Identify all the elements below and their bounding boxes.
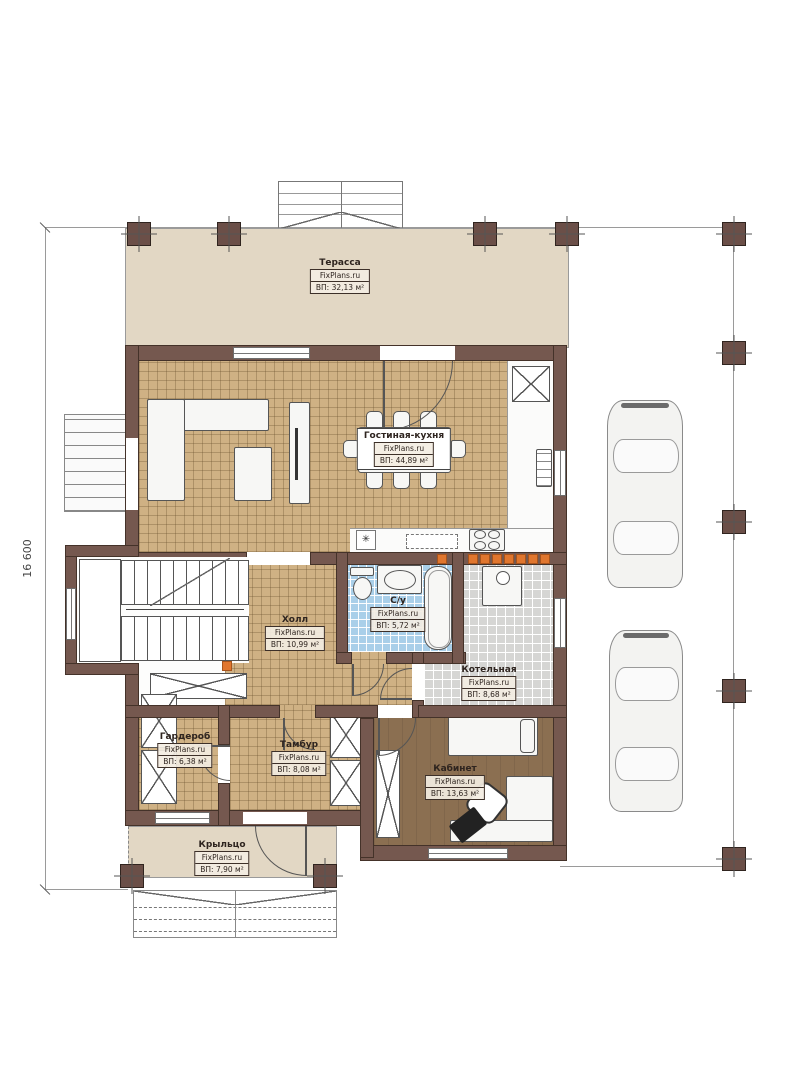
spotlight-marker [222,661,232,671]
grid-line-right [733,228,734,868]
brand-label: FixPlans.ru [375,443,433,455]
room-name: Крыльцо [194,840,249,850]
dimension-label: 16 600 [21,539,34,578]
tv-screen [295,428,298,480]
brand-label: FixPlans.ru [426,776,484,788]
room-label-bathroom: С/у FixPlans.ru ВП: 5,72 м² [370,596,425,632]
tambour-closet [330,760,362,806]
stair-flight-lower [120,616,249,661]
canopy-v-left [279,212,341,229]
column [722,679,746,703]
room-label-living-kitchen: Гостиная-кухня FixPlans.ru ВП: 44,89 м² [357,428,451,470]
wall-segment [336,552,348,664]
room-name: Кабинет [425,764,485,774]
brand-label: FixPlans.ru [272,752,325,764]
terrace-door-leaf [383,361,385,431]
spotlight-marker [480,554,490,564]
steps-chevron-right [235,891,336,905]
coffee-table [234,447,272,501]
burner [488,530,500,539]
front-door-opening [243,812,307,824]
room-name: Гардероб [157,732,212,742]
spotlight-marker [492,554,502,564]
window [233,347,310,359]
spotlight-marker [528,554,538,564]
stair-arrow [126,609,244,610]
car-rear-window [615,747,679,781]
area-label: ВП: 13,63 м² [426,788,484,799]
sink-basin [384,570,416,590]
dining-chair [420,471,437,489]
room-label-office: Кабинет FixPlans.ru ВП: 13,63 м² [425,764,485,800]
area-label: ВП: 10,99 м² [266,639,324,650]
window [554,450,566,496]
wall-segment [65,545,139,557]
stair-break-line [150,558,230,606]
spotlight-marker [504,554,514,564]
room-label-terrace: Терасса FixPlans.ru ВП: 32,13 м² [310,258,370,294]
grid-line-bottom-right [560,866,745,867]
area-label: ВП: 32,13 м² [311,282,369,293]
wall-segment [336,652,352,664]
area-label: ВП: 6,38 м² [158,756,211,767]
fridge [512,366,550,402]
bathtub-inner [428,570,450,648]
area-label: ВП: 8,68 м² [462,689,515,700]
spotlight-marker [540,554,550,564]
wall-segment [125,345,567,361]
wall-segment [218,705,230,745]
brand-label: FixPlans.ru [311,270,369,282]
kitchen-sink-icon: ✳ [356,530,376,550]
column [127,222,151,246]
spotlight-marker [437,554,447,564]
side-entrance-opening [126,438,138,510]
brand-label: FixPlans.ru [266,627,324,639]
oven [536,449,552,487]
room-label-porch: Крыльцо FixPlans.ru ВП: 7,90 м² [194,840,249,876]
dishwasher [406,534,458,549]
column [313,864,337,888]
burner [474,530,486,539]
column [722,341,746,365]
room-name: С/у [370,596,425,606]
floor-plan: 16 600 ✳ [0,0,792,1080]
car-top-view [609,630,683,812]
tambour-closet [330,712,362,758]
room-label-hall: Холл FixPlans.ru ВП: 10,99 м² [265,615,325,651]
wall-segment [418,705,567,718]
office-wardrobe [376,750,400,838]
column [473,222,497,246]
dining-chair [366,471,383,489]
brand-label: FixPlans.ru [158,744,211,756]
bed-pillow [520,719,535,753]
car-rear-window [613,521,679,555]
burner [474,541,486,550]
canopy-v-right [341,212,403,229]
car-windshield [613,439,679,473]
brand-label: FixPlans.ru [371,608,424,620]
room-name: Котельная [461,665,516,675]
wall-segment [315,705,378,718]
toilet-bowl [353,577,372,600]
car-top-view [607,400,683,588]
room-name: Терасса [310,258,370,268]
wall-segment [218,783,230,826]
dining-chair [393,471,410,489]
column [555,222,579,246]
dimension-line [45,228,46,890]
room-label-wardrobe: Гардероб FixPlans.ru ВП: 6,38 м² [157,732,212,768]
sofa-left [147,399,185,501]
car-hood [623,633,669,638]
brand-label: FixPlans.ru [195,852,248,864]
column [722,847,746,871]
wall-segment [125,705,280,718]
area-label: ВП: 7,90 м² [195,864,248,875]
area-label: ВП: 44,89 м² [375,455,433,466]
front-door-leaf [305,826,307,876]
column [217,222,241,246]
area-label: ВП: 5,72 м² [371,620,424,631]
car-windshield [615,667,679,701]
room-name: Холл [265,615,325,625]
toilet-tank [350,567,374,576]
room-name: Тамбур [271,740,326,750]
area-label: ВП: 8,08 м² [272,764,325,775]
wall-segment [412,652,424,664]
stove [469,529,505,551]
office-door-leaf [378,718,380,756]
window [554,598,566,648]
window [66,588,76,640]
room-name: Гостиная-кухня [364,431,444,441]
porch-steps [133,890,337,938]
boiler-dial [496,571,510,585]
car-hood [621,403,668,408]
canopy-hatch [278,181,403,231]
window [428,848,508,859]
steps-chevron-left [134,891,235,905]
spotlight-marker [468,554,478,564]
bathroom-door-leaf [352,664,354,696]
dining-chair [343,440,358,458]
tv-console [289,402,310,504]
column [120,864,144,888]
brand-label: FixPlans.ru [462,677,515,689]
terrace-door-opening [380,346,455,360]
wall-segment [452,552,464,664]
column [722,222,746,246]
boiler-door-leaf [380,698,412,700]
room-label-tambour: Тамбур FixPlans.ru ВП: 8,08 м² [271,740,326,776]
side-entrance-steps [64,414,126,512]
spotlight-marker [516,554,526,564]
window [155,812,210,824]
wall-segment [360,718,374,858]
grid-line-bottom-left [45,889,128,890]
wall-segment [65,663,139,675]
room-label-boiler: Котельная FixPlans.ru ВП: 8,68 м² [461,665,516,701]
burner [488,541,500,550]
column [722,510,746,534]
dining-chair [451,440,466,458]
stair-landing [79,559,121,662]
